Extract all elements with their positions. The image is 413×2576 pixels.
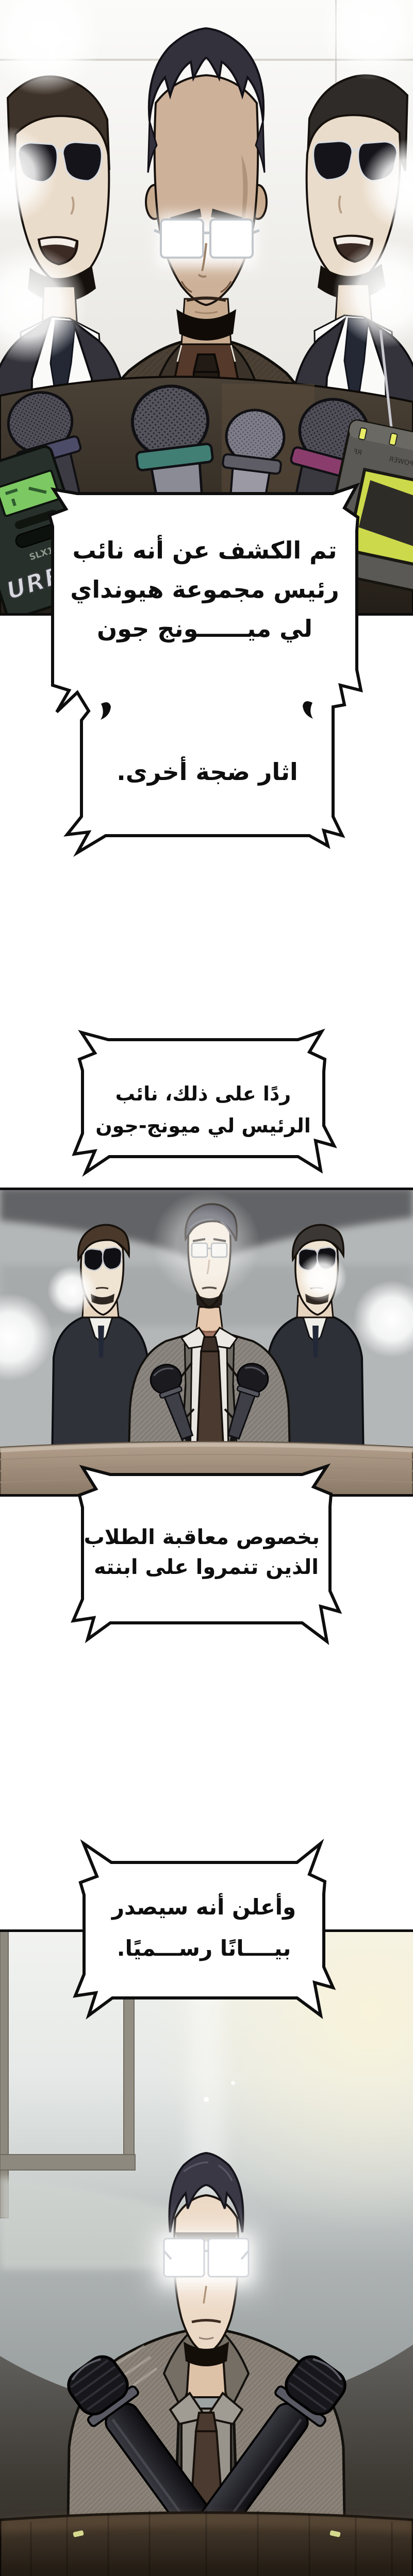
p2-podium-wood (0, 1442, 413, 1497)
bubble-2-text: اثار ضجة أخرى. (92, 753, 323, 790)
glasses-lens-right (210, 219, 253, 258)
p2-left-man-tie (98, 1326, 104, 1358)
panel-1: SLX1 URE POWER RF (0, 0, 413, 616)
panel-2-top-border (0, 1188, 413, 1190)
p2-left-man-sunglasses-left (84, 1249, 103, 1270)
lens-sparkle-2 (231, 2081, 235, 2085)
bubble-crackle-dot-left (101, 702, 111, 720)
glasses-lens-left (161, 219, 203, 258)
bubble-4-line-2: الذين تنمروا على ابنته (93, 1552, 320, 1582)
bubble-2-line-1: اثار ضجة أخرى. (92, 753, 323, 790)
bubble-4-text: بخصوص معاقبة الطلاب الذين تنمروا على ابن… (93, 1522, 320, 1582)
panel-1-art: SLX1 URE POWER RF (0, 0, 413, 616)
lens-sparkle-1 (204, 2097, 209, 2102)
panel-2-art (0, 1188, 413, 1497)
bubble-1-line-3: لي ميــــــونج جون (60, 609, 349, 648)
p3-podium (0, 2509, 413, 2576)
bubble-1-text: تم الكشف عن أنه نائب رئيس مجموعة هيونداي… (60, 531, 349, 648)
webtoon-strip: SLX1 URE POWER RF (0, 0, 413, 2576)
bubble-5-line-2: بيــــانًا رســـميًا. (94, 1928, 313, 1969)
panel-3 (0, 1929, 413, 2576)
bubble-4-line-1: بخصوص معاقبة الطلاب (93, 1522, 320, 1552)
p3-tie-knot (196, 2413, 217, 2431)
bubble-3-line-1: ردًا على ذلك، نائب (93, 1078, 313, 1110)
center-man-tie-knot (194, 354, 219, 372)
p2-left-man-mouth (96, 1288, 108, 1289)
p2-right-man-tie (312, 1326, 319, 1358)
p2-podium (0, 1442, 413, 1497)
bubble-5-text: وأعلن أنه سيصدر بيــــانًا رســـميًا. (94, 1887, 313, 1969)
bubble-crackle-dot-right (303, 701, 313, 719)
p2-left-man-sunglasses-right (103, 1247, 122, 1269)
bubble-3-text: ردًا على ذلك، نائب الرئيس لي ميونج-جون (93, 1078, 313, 1142)
bubble-5-line-1: وأعلن أنه سيصدر (94, 1887, 313, 1928)
bubble-1-line-2: رئيس مجموعة هيونداي (60, 570, 349, 609)
panel-3-art (0, 1929, 413, 2576)
bubble-3-line-2: الرئيس لي ميونج-جون (93, 1110, 313, 1142)
panel-2 (0, 1188, 413, 1497)
p2-center-tie-knot (201, 1337, 219, 1351)
bubble-1-line-1: تم الكشف عن أنه نائب (60, 531, 349, 570)
panel-2-bottom-border (0, 1494, 413, 1497)
